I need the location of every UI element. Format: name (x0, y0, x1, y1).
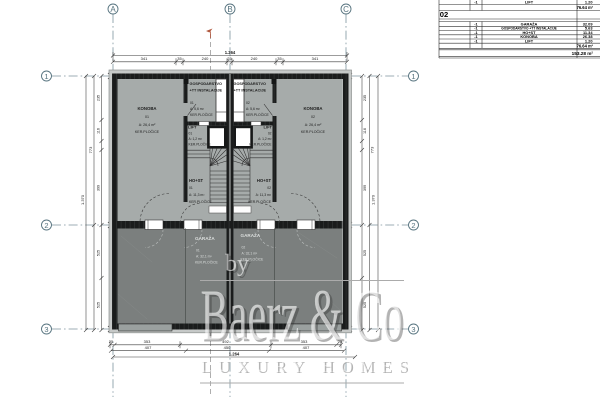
svg-text:KER.PLOČICE: KER.PLOČICE (301, 129, 326, 134)
svg-text:1.264: 1.264 (225, 50, 236, 55)
svg-text:A: 5,6 m²: A: 5,6 m² (190, 107, 205, 111)
svg-text:02: 02 (242, 246, 246, 250)
svg-text:KER.PLOČICE: KER.PLOČICE (248, 199, 272, 204)
svg-text:KER.PLOČICE: KER.PLOČICE (135, 129, 160, 134)
svg-text:KER.PLOČICE: KER.PLOČICE (189, 199, 213, 204)
svg-text:KER.PLOČICE: KER.PLOČICE (195, 260, 219, 265)
svg-text:01: 01 (196, 249, 200, 253)
svg-text:341: 341 (141, 56, 148, 61)
svg-text:341: 341 (312, 56, 319, 61)
svg-text:399: 399 (97, 185, 101, 191)
svg-text:153.28 m²: 153.28 m² (572, 51, 594, 56)
svg-text:KER.PLOČICE: KER.PLOČICE (189, 142, 212, 147)
svg-text:02: 02 (311, 115, 315, 119)
svg-text:407: 407 (145, 345, 152, 350)
svg-text:76.64 m²: 76.64 m² (577, 5, 594, 10)
svg-text:LIFT: LIFT (264, 125, 273, 130)
svg-text:116: 116 (363, 128, 367, 134)
svg-text:KER.PLOČICE: KER.PLOČICE (246, 112, 270, 117)
svg-text:1: 1 (411, 72, 415, 81)
svg-text:2: 2 (44, 221, 48, 230)
svg-text:525: 525 (97, 250, 101, 256)
svg-text:LIFT: LIFT (525, 0, 534, 5)
svg-text:B: B (227, 5, 232, 14)
svg-text:2: 2 (411, 221, 415, 230)
svg-text:399: 399 (363, 185, 367, 191)
svg-text:LIFT: LIFT (525, 38, 534, 43)
svg-text:KONOBA: KONOBA (137, 106, 156, 111)
svg-text:C: C (343, 5, 349, 14)
svg-text:1.370: 1.370 (371, 194, 376, 205)
svg-text:KONOBA: KONOBA (303, 106, 322, 111)
svg-text:35: 35 (177, 56, 182, 61)
svg-text:A: A (110, 5, 116, 14)
svg-text:02: 02 (246, 101, 250, 105)
svg-text:+TT INSTALACIJE: +TT INSTALACIJE (190, 89, 223, 93)
svg-text:35: 35 (277, 56, 282, 61)
svg-text:LIFT: LIFT (188, 125, 197, 130)
svg-text:by: by (225, 251, 249, 277)
svg-text:525: 525 (363, 250, 367, 256)
svg-text:GARAŽA: GARAŽA (521, 21, 538, 26)
svg-text:A: 11,3 m²: A: 11,3 m² (256, 193, 272, 197)
svg-text:HO+ST: HO+ST (257, 178, 272, 183)
svg-text:A: 26,4 m²: A: 26,4 m² (139, 123, 156, 127)
svg-text:1: 1 (44, 72, 48, 81)
svg-text:01: 01 (190, 101, 194, 105)
svg-text:Baerz & Co: Baerz & Co (201, 275, 403, 356)
svg-text:25: 25 (227, 56, 232, 61)
svg-text:240: 240 (202, 56, 209, 61)
svg-text:353: 353 (144, 339, 151, 344)
svg-text:HO+ST: HO+ST (189, 178, 204, 183)
svg-text:76.64 m²: 76.64 m² (577, 44, 594, 49)
svg-text:A: 1,2 m²: A: 1,2 m² (258, 137, 272, 141)
svg-text:01: 01 (145, 115, 149, 119)
svg-text:3: 3 (44, 325, 48, 334)
svg-text:02: 02 (440, 10, 448, 19)
svg-text:235: 235 (97, 95, 101, 101)
svg-text:02: 02 (268, 132, 272, 136)
svg-text:235: 235 (363, 95, 367, 101)
svg-text:A: 1,2 m²: A: 1,2 m² (189, 137, 203, 141)
svg-text:116: 116 (97, 128, 101, 134)
svg-text:02: 02 (267, 186, 271, 190)
svg-text:A: 26,4 m²: A: 26,4 m² (305, 123, 322, 127)
svg-text:A: 5,6 m²: A: 5,6 m² (246, 107, 261, 111)
svg-text:+TT INSTALACIJE: +TT INSTALACIJE (234, 89, 267, 93)
svg-text:GOSPODARSTVO: GOSPODARSTVO (190, 82, 223, 86)
svg-text:525: 525 (97, 302, 101, 308)
svg-text:1.370: 1.370 (80, 194, 85, 205)
svg-text:A: 32,1 m²: A: 32,1 m² (196, 255, 213, 259)
svg-text:773: 773 (370, 146, 375, 153)
svg-text:25: 25 (109, 339, 114, 344)
svg-text:GARAŽA: GARAŽA (195, 234, 215, 241)
svg-text:GOSPODARSTVO: GOSPODARSTVO (234, 82, 267, 86)
svg-text:01: 01 (189, 186, 193, 190)
svg-text:1.20: 1.20 (585, 0, 593, 5)
svg-text:773: 773 (88, 146, 93, 153)
svg-text:01: 01 (189, 132, 193, 136)
svg-text:KER.PLOČICE: KER.PLOČICE (249, 142, 272, 147)
svg-text:A: 11,3 m²: A: 11,3 m² (189, 193, 205, 197)
svg-text:240: 240 (251, 56, 258, 61)
svg-text:3: 3 (411, 325, 415, 334)
svg-text:KER.PLOČICE: KER.PLOČICE (190, 112, 214, 117)
svg-text:GARAŽA: GARAŽA (241, 231, 261, 238)
